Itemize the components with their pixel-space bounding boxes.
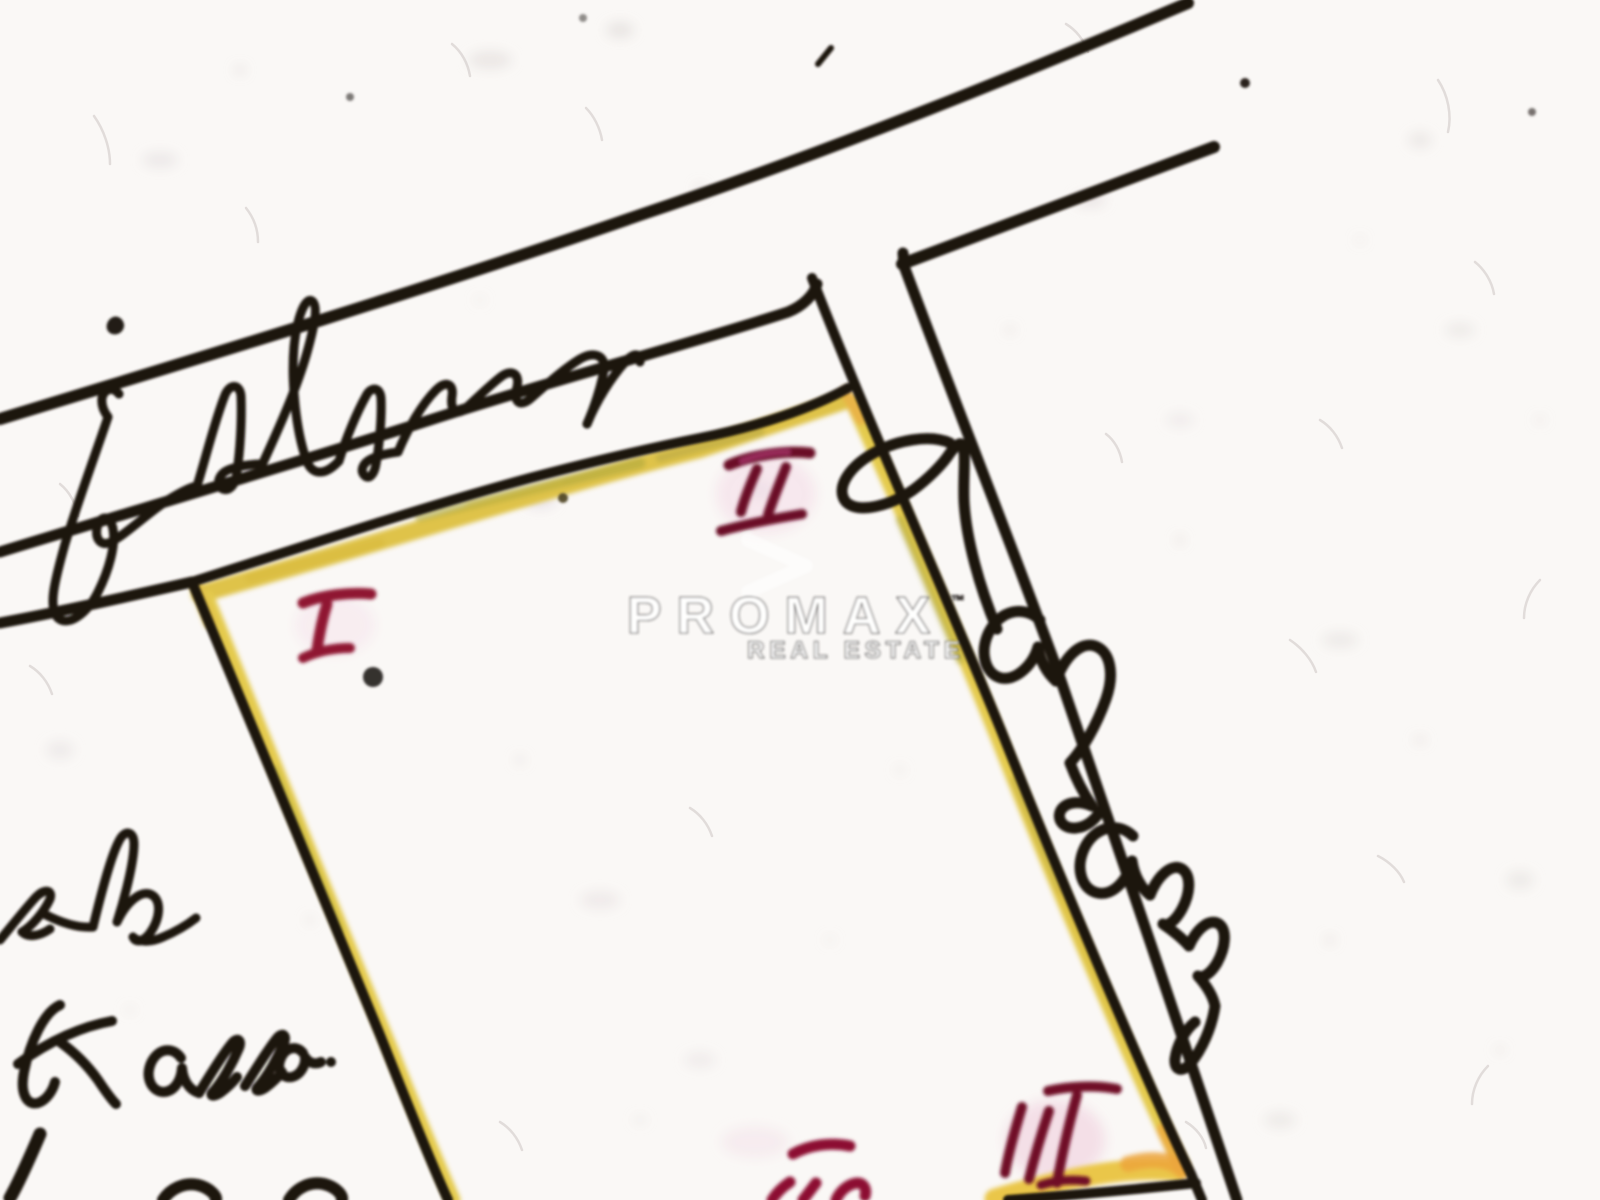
svg-text:™: ™	[951, 592, 965, 608]
svg-text:REAL ESTATE: REAL ESTATE	[747, 637, 965, 664]
